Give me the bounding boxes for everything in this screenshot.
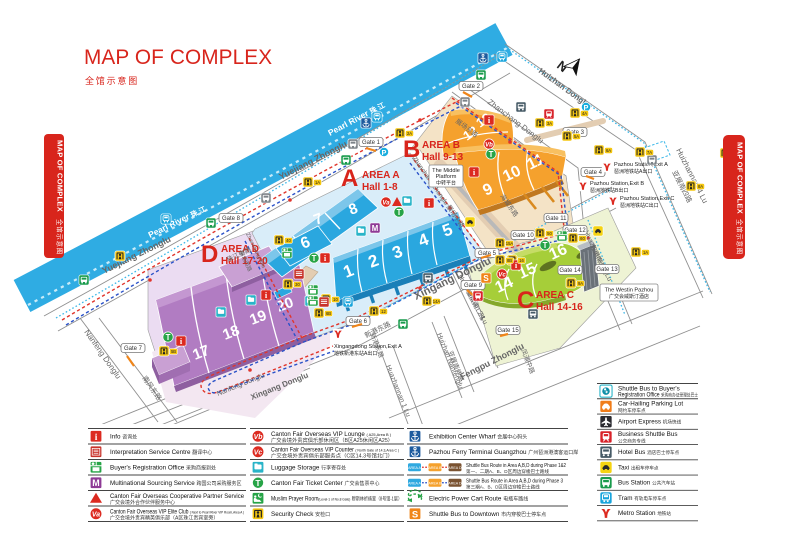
svg-text:MAP OF COMPLEX: MAP OF COMPLEX [736, 142, 745, 214]
svg-text:Interpretation Service Centre: Interpretation Service Centre 翻译中心 [110, 449, 212, 456]
svg-text:1A: 1A [315, 180, 320, 185]
svg-text:4A: 4A [582, 111, 587, 116]
svg-text:Canton Fair Overseas VIP Loung: Canton Fair Overseas VIP Lounge ( A25,Ar… [271, 431, 392, 438]
svg-text:Pazhou Ferry Terminal Guangzho: Pazhou Ferry Terminal Guangzhou 广州琶洲港澳客运… [429, 449, 578, 456]
svg-text:1A: 1A [643, 250, 648, 255]
svg-text:琶洲地铁站A出口: 琶洲地铁站A出口 [614, 168, 652, 175]
svg-text:The Westin Pazhou: The Westin Pazhou [605, 288, 654, 294]
svg-text:30: 30 [295, 282, 300, 287]
svg-text:Metro Station 地铁站: Metro Station 地铁站 [618, 510, 671, 517]
svg-text:Hall 9-13: Hall 9-13 [422, 152, 464, 163]
svg-text:Business Shuttle Bus: Business Shuttle Bus [618, 431, 678, 438]
svg-text:10: 10 [333, 297, 338, 302]
svg-text:Platform: Platform [436, 174, 457, 180]
svg-text:Hall 1-8: Hall 1-8 [362, 182, 398, 193]
svg-text:AREA A: AREA A [362, 170, 400, 181]
svg-text:全馆示意图: 全馆示意图 [56, 219, 65, 255]
svg-text:5A: 5A [574, 134, 579, 139]
svg-text:Info 咨询处: Info 咨询处 [110, 433, 137, 440]
svg-text:15A: 15A [506, 241, 514, 246]
svg-text:Gate 10: Gate 10 [512, 233, 534, 239]
svg-text:AREA D: AREA D [448, 466, 462, 470]
svg-text:第三期A、B、D区周边穿梭巴士路线: 第三期A、B、D区周边穿梭巴士路线 [466, 483, 540, 490]
svg-text:Electric Power Cart Route 电瓶车路: Electric Power Cart Route 电瓶车路线 [429, 495, 528, 502]
svg-text:Multinational Sourcing Service: Multinational Sourcing Service 跨国公司采购服务区 [110, 480, 241, 487]
svg-text:Pazhou Station,Exit A: Pazhou Station,Exit A [614, 162, 668, 168]
svg-text:12: 12 [381, 309, 386, 314]
svg-text:AREA B: AREA B [429, 482, 443, 486]
svg-text:Taxi 出租车停车点: Taxi 出租车停车点 [618, 464, 659, 471]
svg-text:AREA A: AREA A [408, 482, 421, 486]
svg-text:Pazhou Station,Exit C: Pazhou Station,Exit C [620, 196, 674, 202]
svg-text:Airport Express 机场快线: Airport Express 机场快线 [618, 419, 682, 426]
svg-text:Hotel Bus 酒店巴士停车点: Hotel Bus 酒店巴士停车点 [618, 449, 680, 456]
svg-text:Buyer's Registration Office 采购: Buyer's Registration Office 采购商报到处 [110, 464, 216, 471]
svg-text:Bus Station 公共汽车站: Bus Station 公共汽车站 [618, 480, 675, 487]
svg-text:Hall 14-16: Hall 14-16 [536, 302, 583, 313]
svg-text:Canton Fair Overseas VIP Count: Canton Fair Overseas VIP Counter ( North… [271, 446, 400, 453]
svg-text:14A: 14A [433, 299, 441, 304]
svg-text:Tram 有轨电车停车点: Tram 有轨电车停车点 [618, 495, 667, 502]
svg-text:广交会境外贵宾精英俱乐部（A区珠江贵宾室旁）: 广交会境外贵宾精英俱乐部（A区珠江贵宾室旁） [110, 514, 218, 521]
svg-text:Exhibition Center Wharf 会展中心码头: Exhibition Center Wharf 会展中心码头 [429, 433, 527, 440]
svg-text:广交会境外贵宾俱乐部服务点（C区14.3号馆北门）: 广交会境外贵宾俱乐部服务点（C区14.3号馆北门） [271, 452, 393, 459]
svg-text:16: 16 [519, 258, 524, 263]
svg-text:琶洲地铁站B出口: 琶洲地铁站B出口 [590, 187, 628, 194]
svg-text:广交会威斯汀酒店: 广交会威斯汀酒店 [609, 293, 649, 300]
svg-text:AREA B: AREA B [422, 140, 460, 151]
svg-text:Gate 7: Gate 7 [124, 346, 143, 352]
svg-text:40: 40 [286, 238, 291, 243]
svg-text:Gate 13: Gate 13 [596, 267, 618, 273]
svg-text:Luggage Storage 行李寄存处: Luggage Storage 行李寄存处 [271, 464, 346, 471]
svg-text:AREA D: AREA D [448, 482, 462, 486]
svg-text:AREA B: AREA B [429, 466, 443, 470]
svg-text:全馆示意图: 全馆示意图 [85, 75, 139, 86]
svg-text:Muslim Prayer Room(Level-1 of: Muslim Prayer Room(Level-1 of No.8 Gate)… [271, 495, 402, 502]
svg-text:Canton Fair Overseas VIP Elite: Canton Fair Overseas VIP Elite Club ( Ne… [110, 508, 245, 515]
svg-text:Pazhou Station,Exit B: Pazhou Station,Exit B [590, 181, 644, 187]
svg-text:6A: 6A [606, 148, 611, 153]
svg-text:3A: 3A [547, 121, 552, 126]
svg-text:2A: 2A [407, 131, 412, 136]
svg-text:50: 50 [547, 231, 552, 236]
svg-text:5B: 5B [171, 349, 176, 354]
svg-text:网约车停车点: 网约车停车点 [618, 407, 646, 414]
svg-text:中转平台: 中转平台 [436, 180, 456, 187]
svg-text:琶洲地铁站C出口: 琶洲地铁站C出口 [620, 202, 659, 209]
svg-text:Gate 14: Gate 14 [559, 268, 581, 274]
svg-text:Gate 11: Gate 11 [546, 216, 568, 222]
svg-text:Xingangdong Station,Exit A: Xingangdong Station,Exit A [334, 344, 402, 350]
svg-text:全馆示意图: 全馆示意图 [736, 219, 745, 255]
svg-text:60: 60 [580, 236, 585, 241]
svg-text:公交商务专线: 公交商务专线 [618, 437, 646, 444]
svg-text:Gate 1: Gate 1 [362, 140, 381, 146]
svg-text:8B: 8B [507, 258, 512, 263]
svg-text:MAP OF COMPLEX: MAP OF COMPLEX [56, 140, 65, 212]
svg-text:8A: 8A [698, 184, 703, 189]
svg-text:9A: 9A [578, 281, 583, 286]
svg-text:A: A [341, 165, 358, 192]
svg-text:6B: 6B [326, 311, 331, 316]
svg-text:Security Check 安检口: Security Check 安检口 [271, 511, 330, 518]
svg-text:7A: 7A [647, 150, 652, 155]
svg-text:Gate 15: Gate 15 [497, 328, 519, 334]
svg-text:广交会境外合作伙伴服务中心: 广交会境外合作伙伴服务中心 [110, 499, 175, 506]
svg-text:Gate 2: Gate 2 [462, 84, 481, 90]
svg-text:AREA C: AREA C [536, 290, 574, 301]
svg-text:Gate 9: Gate 9 [464, 283, 483, 289]
svg-text:Shuttle Bus to Downtown 市内穿梭巴士: Shuttle Bus to Downtown 市内穿梭巴士停车点 [429, 511, 546, 518]
svg-text:AREA A: AREA A [408, 466, 421, 470]
svg-text:MAP OF COMPLEX: MAP OF COMPLEX [84, 46, 272, 69]
svg-text:地铁新港东站A出口: 地铁新港东站A出口 [334, 350, 377, 357]
svg-text:Registration Office 采购商办证受理处巴士: Registration Office 采购商办证受理处巴士 [618, 392, 698, 399]
svg-text:广交会境外贵宾俱乐部休闲区（B区A25休闲区A25）: 广交会境外贵宾俱乐部休闲区（B区A25休闲区A25） [271, 437, 393, 444]
svg-text:Car-Hailing Parking Lot: Car-Hailing Parking Lot [618, 401, 683, 408]
svg-text:Gate 8: Gate 8 [222, 216, 241, 222]
svg-text:Canton Fair Overseas Cooperati: Canton Fair Overseas Cooperative Partner… [110, 493, 244, 500]
svg-text:Canton Fair Ticket Center 广交会售: Canton Fair Ticket Center 广交会售票中心 [271, 480, 380, 487]
svg-text:第一、二期A、B、D区周边穿梭巴士路线: 第一、二期A、B、D区周边穿梭巴士路线 [466, 468, 549, 475]
